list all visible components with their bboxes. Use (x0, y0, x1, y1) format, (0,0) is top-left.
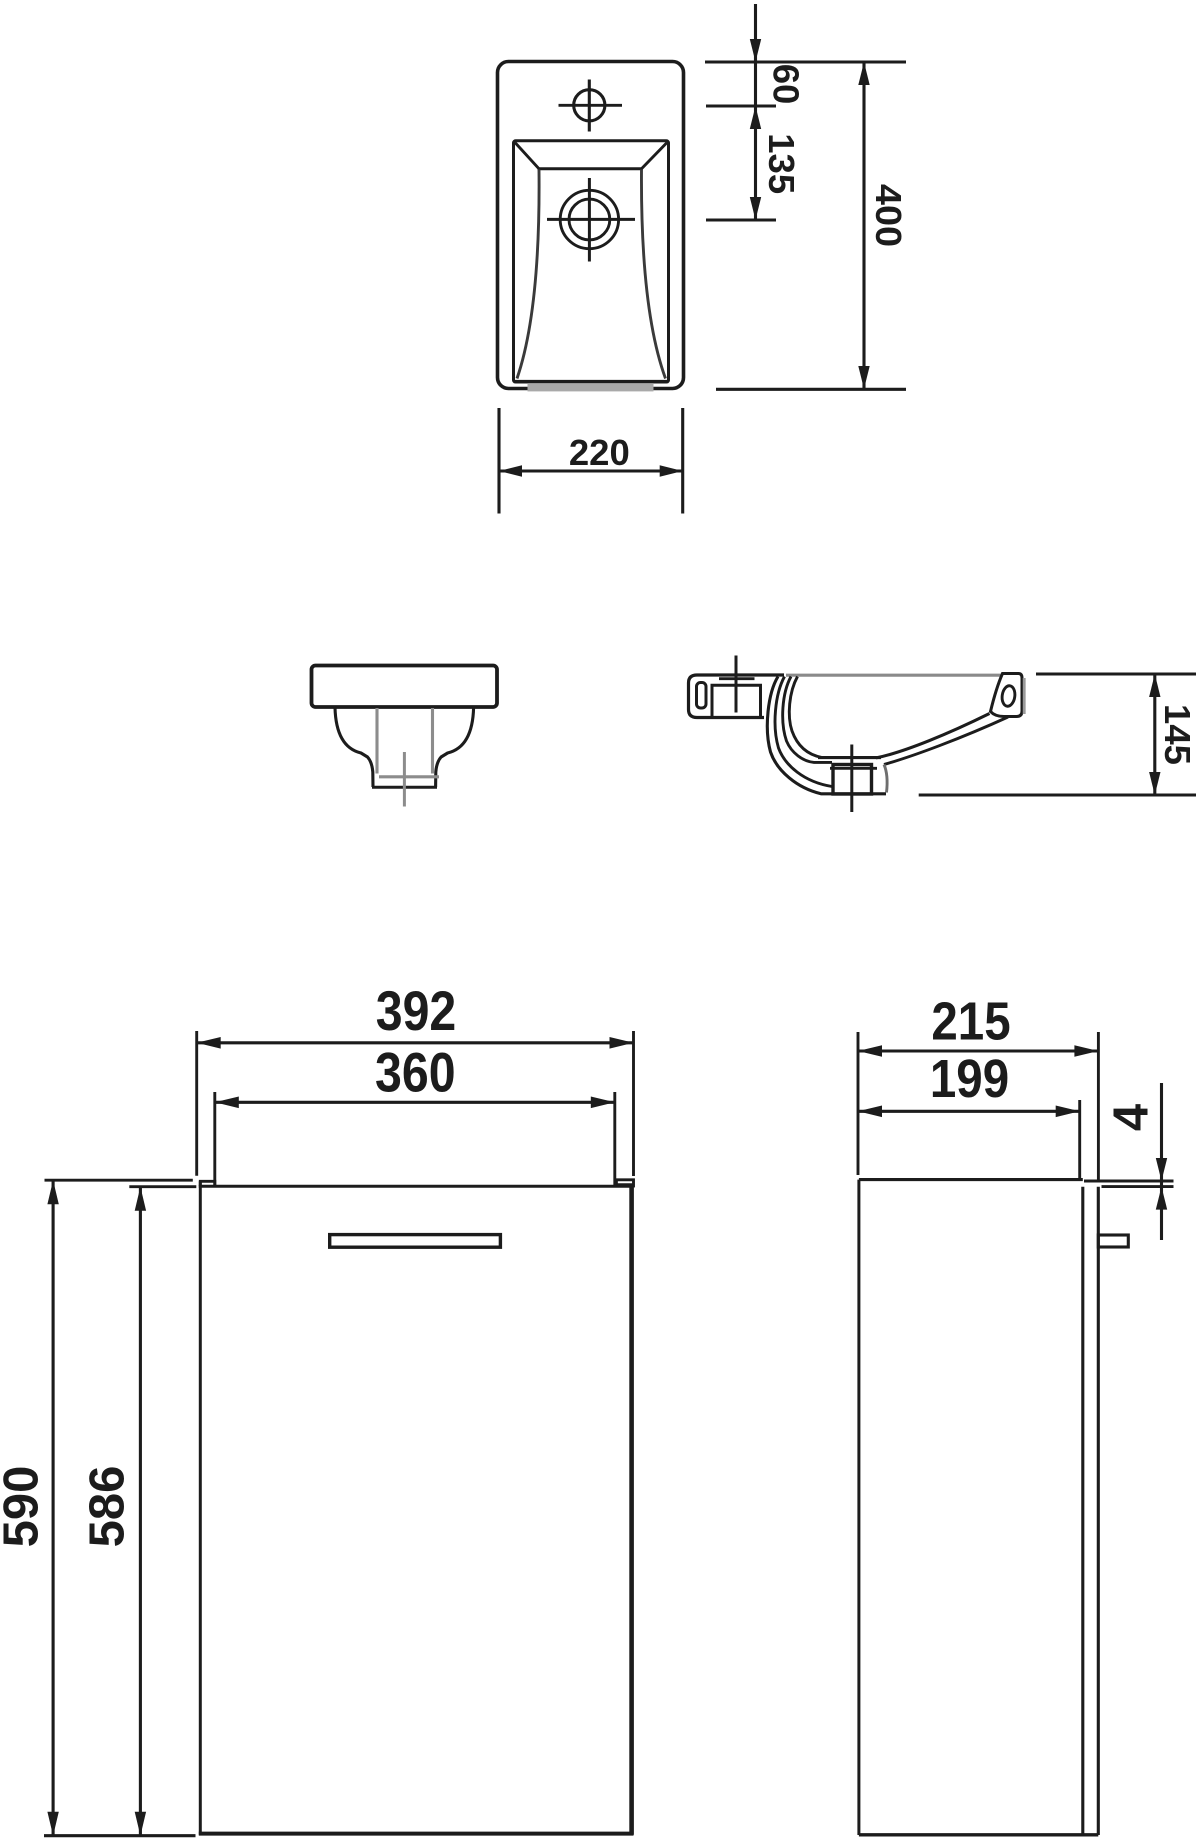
svg-text:135: 135 (761, 133, 802, 194)
svg-text:199: 199 (930, 1048, 1009, 1109)
svg-text:360: 360 (375, 1043, 456, 1105)
svg-text:220: 220 (569, 432, 630, 473)
svg-text:586: 586 (81, 1466, 135, 1548)
svg-text:60: 60 (766, 64, 807, 105)
svg-text:215: 215 (931, 991, 1010, 1052)
svg-text:145: 145 (1157, 704, 1198, 765)
svg-text:4: 4 (1105, 1104, 1159, 1131)
svg-text:392: 392 (376, 981, 457, 1043)
svg-text:400: 400 (868, 184, 909, 247)
svg-text:590: 590 (0, 1466, 49, 1548)
